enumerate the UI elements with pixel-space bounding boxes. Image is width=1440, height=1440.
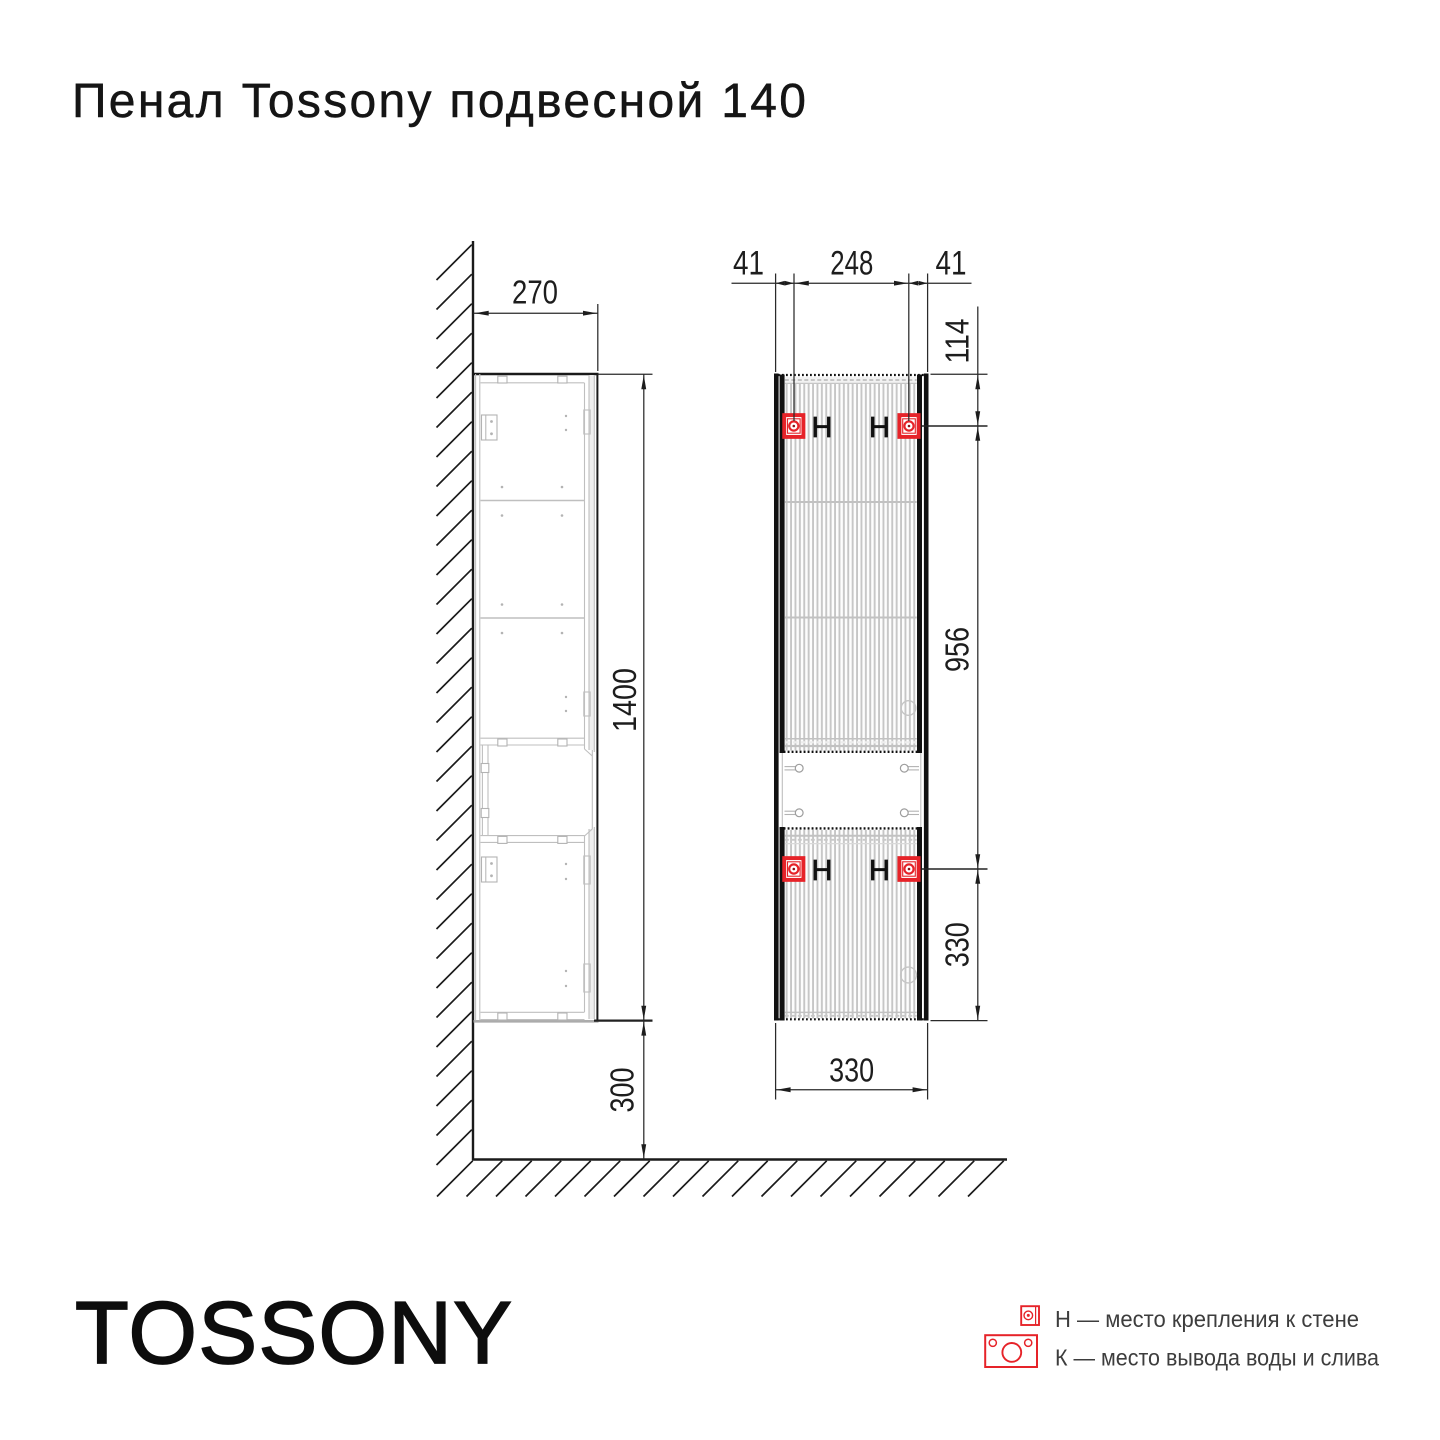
svg-text:956: 956 [939,627,976,672]
svg-text:TOSSONY: TOSSONY [75,1283,512,1382]
svg-text:330: 330 [939,922,976,967]
svg-text:270: 270 [512,274,558,311]
svg-text:41: 41 [733,244,764,282]
svg-text:248: 248 [830,244,873,282]
svg-text:114: 114 [939,319,976,364]
svg-text:300: 300 [604,1068,641,1113]
svg-text:Пенал Tossony подвесной 140: Пенал Tossony подвесной 140 [72,75,806,128]
svg-text:1400: 1400 [606,668,643,732]
svg-text:H: H [869,855,890,887]
svg-text:Н — место крепления к стене: Н — место крепления к стене [1055,1306,1359,1332]
svg-text:H: H [812,412,833,444]
svg-text:H: H [869,412,890,444]
svg-text:330: 330 [829,1052,874,1089]
svg-text:H: H [812,855,833,887]
svg-text:41: 41 [936,244,967,282]
svg-text:К — место вывода воды и слива: К — место вывода воды и слива [1055,1345,1379,1371]
